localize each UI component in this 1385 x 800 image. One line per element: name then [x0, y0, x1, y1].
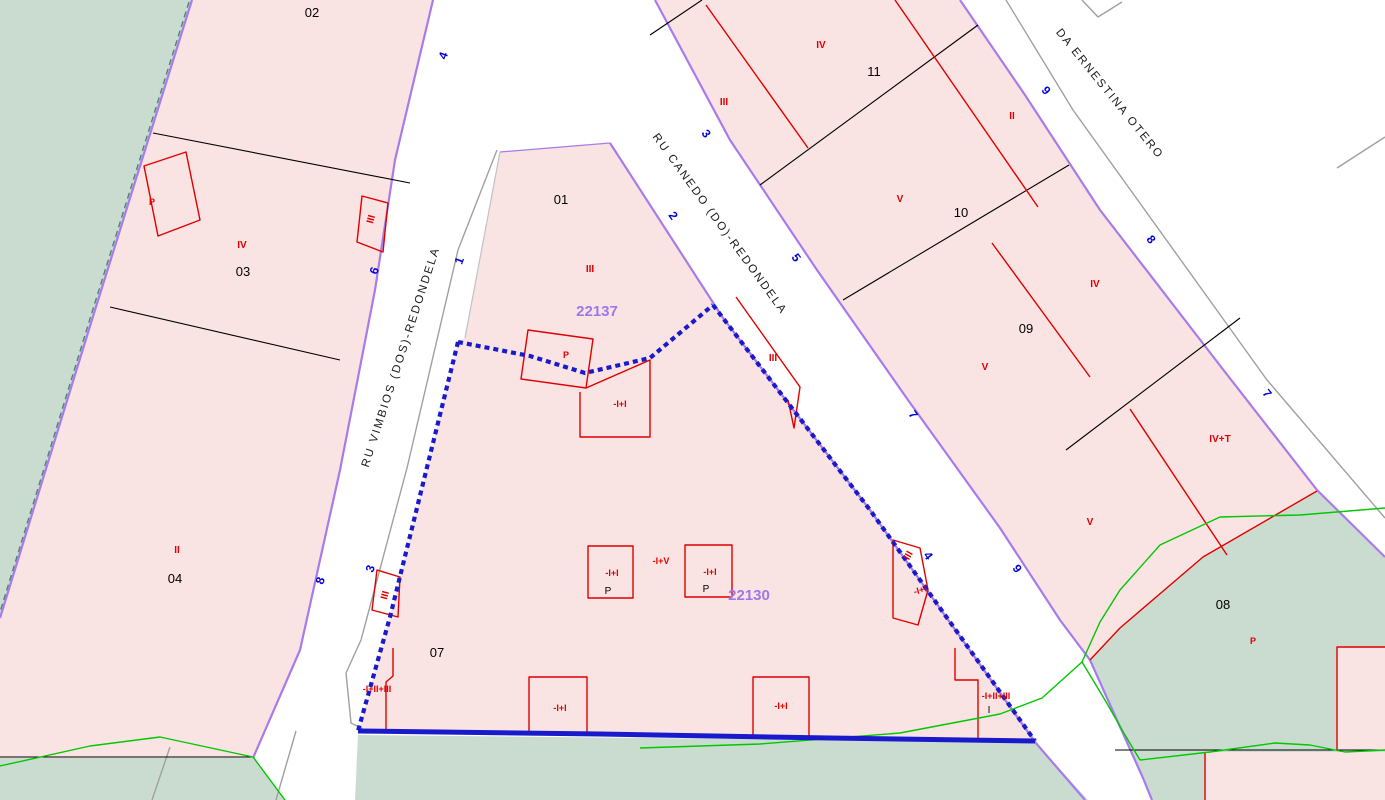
construction-label-11: V: [1087, 517, 1094, 528]
street-number-5: 3: [699, 127, 714, 141]
street-number-1: 1: [452, 255, 468, 266]
building-label-8: P: [703, 584, 710, 595]
parcel-bottom-right-lower[interactable]: [1205, 752, 1385, 800]
construction-label-4: IV: [816, 40, 826, 51]
green-area-bottom-left: [0, 758, 285, 800]
parcel-number-6: 10: [954, 205, 968, 220]
construction-label-5: III: [720, 97, 729, 108]
street-number-10: 9: [1010, 562, 1025, 576]
building-label-11: -I+II+III: [363, 684, 392, 694]
construction-label-1: II: [174, 545, 180, 556]
parcel-number-0: 02: [305, 5, 319, 20]
street-number-7: 5: [789, 251, 804, 265]
parcel-number-7: 09: [1019, 321, 1033, 336]
construction-label-12: III: [379, 590, 392, 601]
parcel-number-3: 01: [554, 192, 568, 207]
parcel-number-4: 07: [430, 645, 444, 660]
building-label-2: P: [1250, 636, 1256, 646]
building-label-4: -I+I: [605, 568, 618, 578]
building-label-13: I: [988, 705, 991, 716]
street-number-3: 3: [363, 563, 379, 574]
building-label-9: -I+I: [553, 703, 566, 713]
cadastral-map[interactable]: RU VIMBIOS (DOS)-REDONDELARU CANEDO (DO)…: [0, 0, 1385, 800]
building-label-5: -I+V: [653, 556, 670, 566]
street-number-8: 7: [906, 408, 921, 422]
parcel-number-2: 04: [168, 571, 182, 586]
construction-label-0: IV: [237, 240, 247, 251]
construction-label-7: II: [1009, 111, 1015, 122]
building-label-1: P: [563, 350, 569, 360]
construction-label-13: III: [769, 353, 778, 364]
construction-label-6: V: [897, 194, 904, 205]
reference-number-1: 22130: [728, 587, 770, 604]
street-name-da-ernestina-otero: DA ERNESTINA OTERO: [1053, 27, 1165, 162]
parcel-number-1: 03: [236, 264, 250, 279]
construction-label-2: III: [586, 264, 595, 275]
parcel-number-5: 11: [867, 64, 881, 79]
street-number-6: 2: [666, 209, 681, 223]
building-label-3: -I+I: [613, 399, 626, 409]
street-number-0: 4: [436, 50, 452, 61]
street-number-13: 7: [1260, 386, 1275, 400]
building-label-7: P: [605, 586, 612, 597]
construction-label-8: IV: [1090, 279, 1100, 290]
construction-label-9: V: [982, 362, 989, 373]
parcel-bottom-right-upper[interactable]: [1337, 647, 1385, 750]
street-number-11: 9: [1039, 83, 1054, 97]
building-label-6: -I+I: [703, 567, 716, 577]
construction-label-10: IV+T: [1209, 434, 1230, 445]
reference-number-0: 22137: [576, 303, 618, 320]
building-label-10: -I+I: [774, 701, 787, 711]
building-label-0: P: [149, 197, 155, 207]
building-label-12: -I+II+III: [982, 691, 1011, 701]
parcel-number-8: 08: [1216, 597, 1230, 612]
street-number-12: 8: [1144, 232, 1159, 246]
